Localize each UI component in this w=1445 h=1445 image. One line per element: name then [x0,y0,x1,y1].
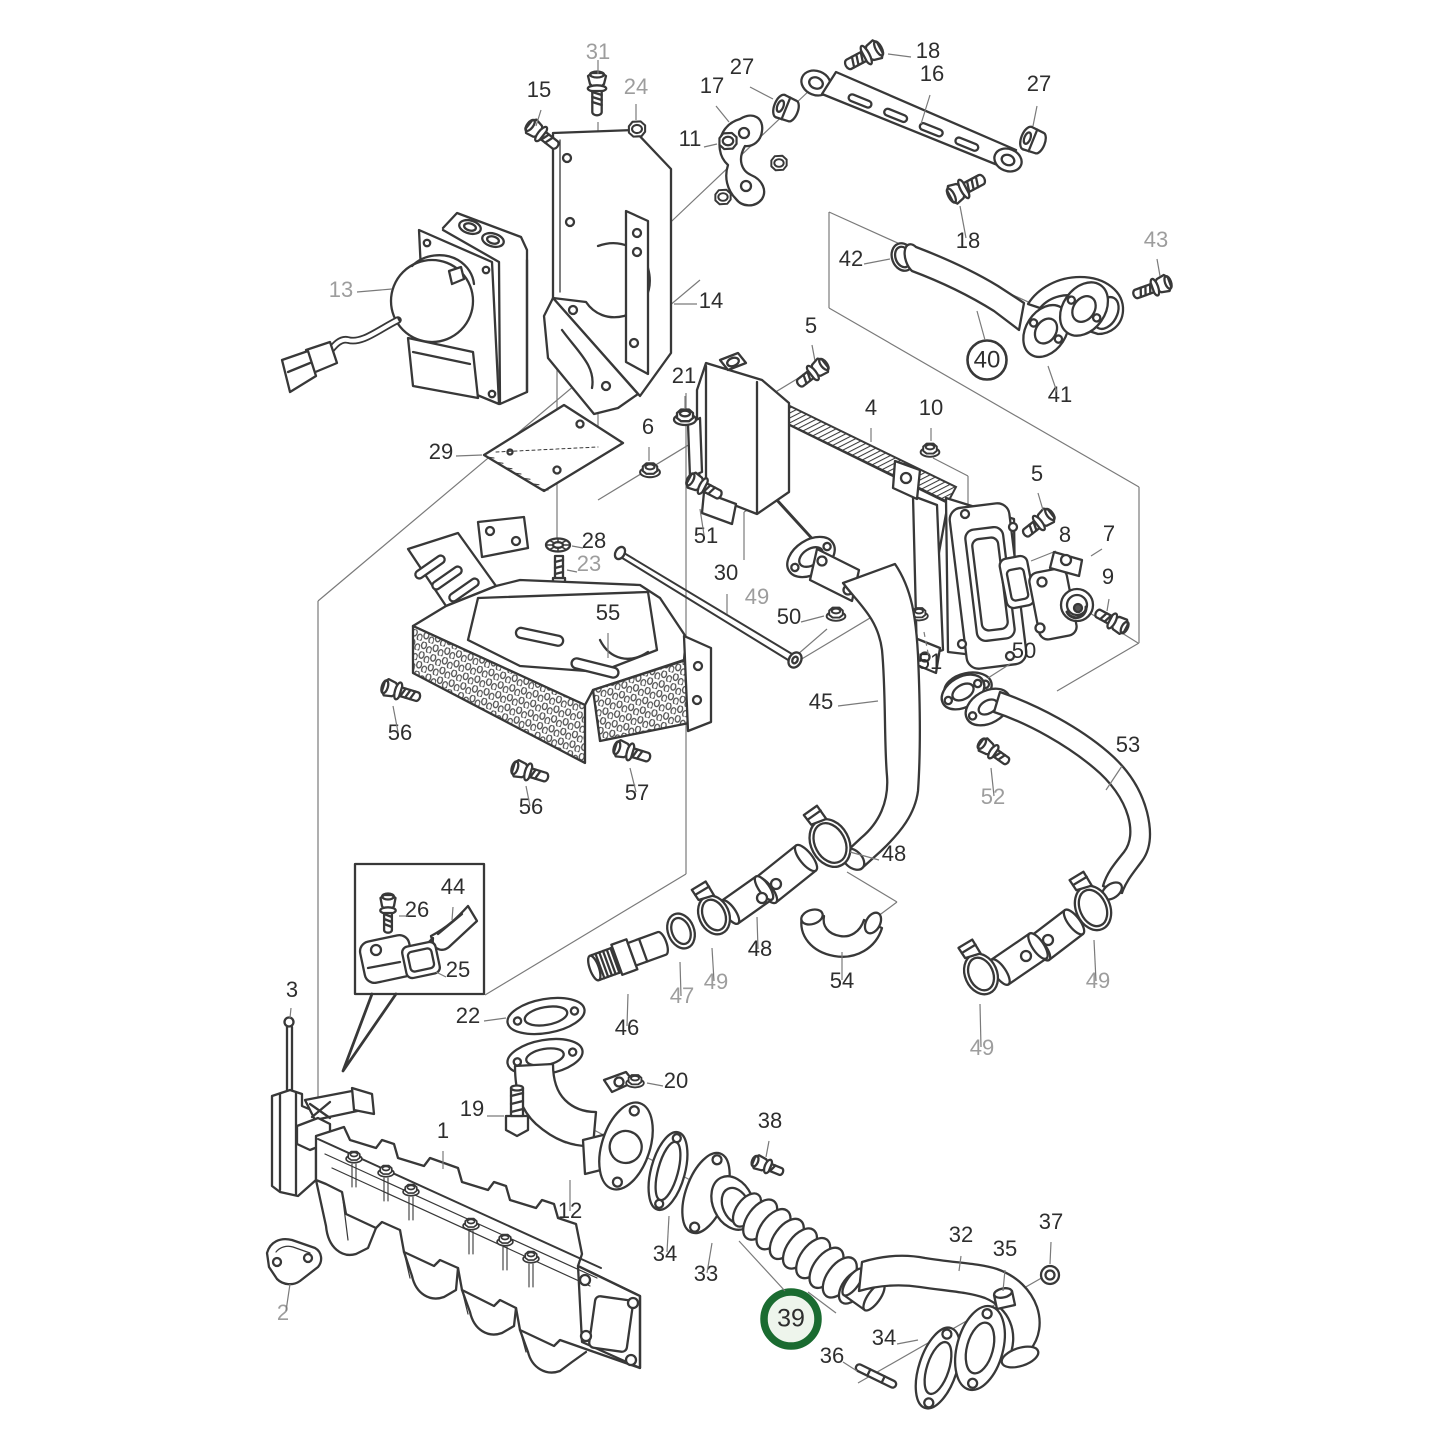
svg-text:39: 39 [777,1305,805,1333]
svg-text:25: 25 [446,957,470,982]
svg-text:14: 14 [699,288,723,313]
svg-text:21: 21 [672,363,696,388]
svg-text:29: 29 [429,439,453,464]
svg-text:27: 27 [730,54,754,79]
svg-text:40: 40 [974,346,1001,373]
svg-text:26: 26 [405,897,429,922]
svg-text:1: 1 [437,1118,449,1143]
svg-text:22: 22 [456,1003,480,1028]
svg-text:51: 51 [918,649,942,674]
svg-text:56: 56 [388,720,412,745]
svg-text:53: 53 [1116,732,1140,757]
svg-text:10: 10 [919,395,943,420]
svg-text:4: 4 [865,395,877,420]
svg-text:32: 32 [949,1222,973,1247]
svg-text:16: 16 [920,61,944,86]
svg-text:48: 48 [748,936,772,961]
svg-text:20: 20 [664,1068,688,1093]
svg-text:3: 3 [286,977,298,1002]
svg-text:44: 44 [441,874,465,899]
svg-text:28: 28 [582,528,606,553]
svg-text:55: 55 [596,600,620,625]
svg-text:13: 13 [329,277,353,302]
svg-text:56: 56 [519,794,543,819]
svg-text:51: 51 [694,523,718,548]
svg-text:50: 50 [1012,638,1036,663]
svg-text:41: 41 [1048,382,1072,407]
svg-text:50: 50 [777,604,801,629]
svg-text:49: 49 [745,584,769,609]
svg-text:27: 27 [1027,71,1051,96]
svg-text:36: 36 [820,1343,844,1368]
svg-text:34: 34 [653,1241,677,1266]
svg-text:38: 38 [758,1108,782,1133]
svg-text:18: 18 [956,228,980,253]
svg-text:34: 34 [872,1325,896,1350]
svg-text:49: 49 [704,969,728,994]
svg-text:30: 30 [714,560,738,585]
svg-text:17: 17 [700,73,724,98]
svg-text:18: 18 [916,38,940,63]
svg-text:48: 48 [882,841,906,866]
svg-text:9: 9 [1102,564,1114,589]
svg-text:15: 15 [527,77,551,102]
svg-text:19: 19 [460,1096,484,1121]
svg-text:8: 8 [1059,522,1071,547]
svg-text:42: 42 [839,246,863,271]
svg-text:23: 23 [577,551,601,576]
svg-text:43: 43 [1144,227,1168,252]
svg-text:5: 5 [1031,461,1043,486]
svg-text:49: 49 [970,1035,994,1060]
svg-text:24: 24 [624,74,648,99]
svg-text:7: 7 [1103,521,1115,546]
svg-text:5: 5 [805,313,817,338]
svg-text:33: 33 [694,1261,718,1286]
svg-text:45: 45 [809,689,833,714]
svg-text:6: 6 [642,414,654,439]
svg-text:57: 57 [625,780,649,805]
svg-text:47: 47 [670,983,694,1008]
svg-text:37: 37 [1039,1209,1063,1234]
svg-text:11: 11 [679,126,702,151]
svg-text:35: 35 [993,1236,1017,1261]
svg-text:49: 49 [1086,968,1110,993]
